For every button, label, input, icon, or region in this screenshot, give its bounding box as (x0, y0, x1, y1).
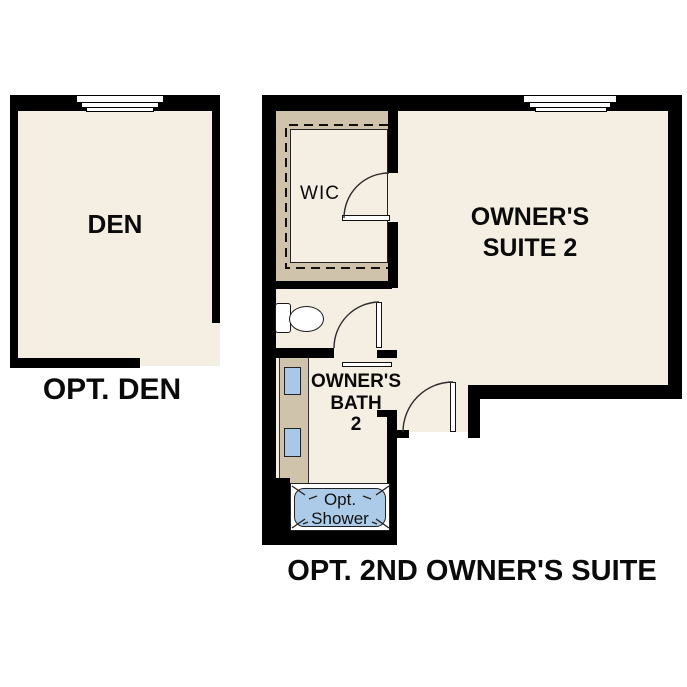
den-wall-left (10, 95, 18, 368)
shower-label-line1: Opt. (295, 490, 385, 509)
sink-icon-2 (284, 428, 301, 457)
floor-plan-page: DEN OPT. DEN (0, 0, 687, 687)
bath-label-line1: OWNER'S (300, 371, 412, 393)
bath-label: OWNER'S BATH 2 (300, 371, 412, 436)
suite-wall-right (668, 95, 682, 399)
suite-caption: OPT. 2ND OWNER'S SUITE (262, 555, 682, 588)
den-wall-bottom (10, 358, 140, 368)
den-wall-right (212, 95, 220, 323)
sink-icon-1 (284, 367, 301, 395)
wic-wall-right-upper (388, 111, 398, 173)
wic-label: WIC (294, 183, 346, 205)
bath-label-line3: 2 (300, 414, 412, 436)
toilet-room-wall-bottom (262, 348, 334, 358)
suite-wall-top (262, 95, 682, 111)
shower-label-line2: Shower (295, 509, 385, 528)
suite-wall-bottom-left (262, 531, 397, 545)
suite-room-label-line2: SUITE 2 (430, 233, 630, 264)
wic-wall-right-lower (388, 222, 398, 288)
shower-icon: Opt. Shower (294, 488, 386, 527)
den-window-sill-2 (86, 107, 154, 112)
suite-wall-bottom (468, 385, 680, 399)
suite-entry-door-panel (450, 382, 456, 432)
toilet-door-panel (376, 302, 382, 348)
den-caption: OPT. DEN (28, 373, 196, 407)
suite-room-label-line1: OWNER'S (430, 202, 630, 233)
suite-room-label: OWNER'S SUITE 2 (430, 202, 630, 264)
wic-toilet-wall (262, 281, 392, 289)
toilet-door-jamb (377, 350, 397, 358)
bath-threshold (342, 362, 392, 367)
suite-window-sill-2 (535, 107, 607, 112)
den-room-label: DEN (60, 209, 170, 240)
bath-label-line2: BATH (300, 393, 412, 415)
suite-wall-jog (468, 385, 480, 438)
toilet-bowl-icon (289, 306, 324, 332)
suite-wall-left (262, 95, 276, 531)
wic-door-panel (342, 215, 390, 221)
